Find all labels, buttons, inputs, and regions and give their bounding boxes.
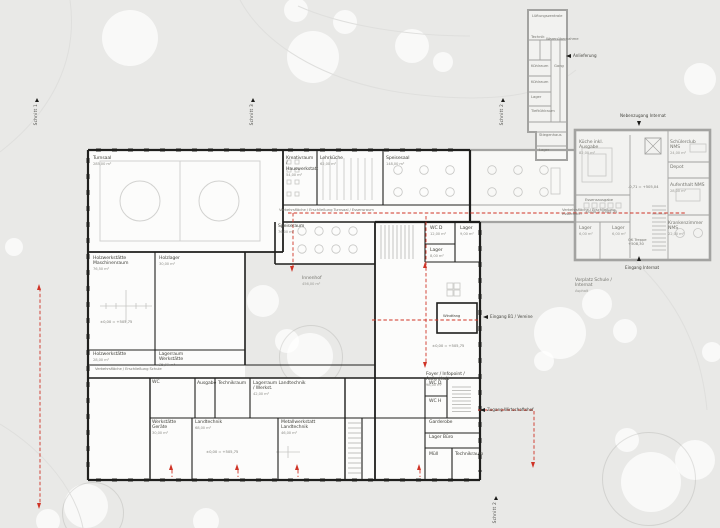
floor-plan-drawing — [0, 0, 720, 528]
building-floor-fills — [88, 10, 710, 480]
site-plan: Turnsaal285,00 m²Kreativraum / Hauswerks… — [0, 0, 720, 528]
